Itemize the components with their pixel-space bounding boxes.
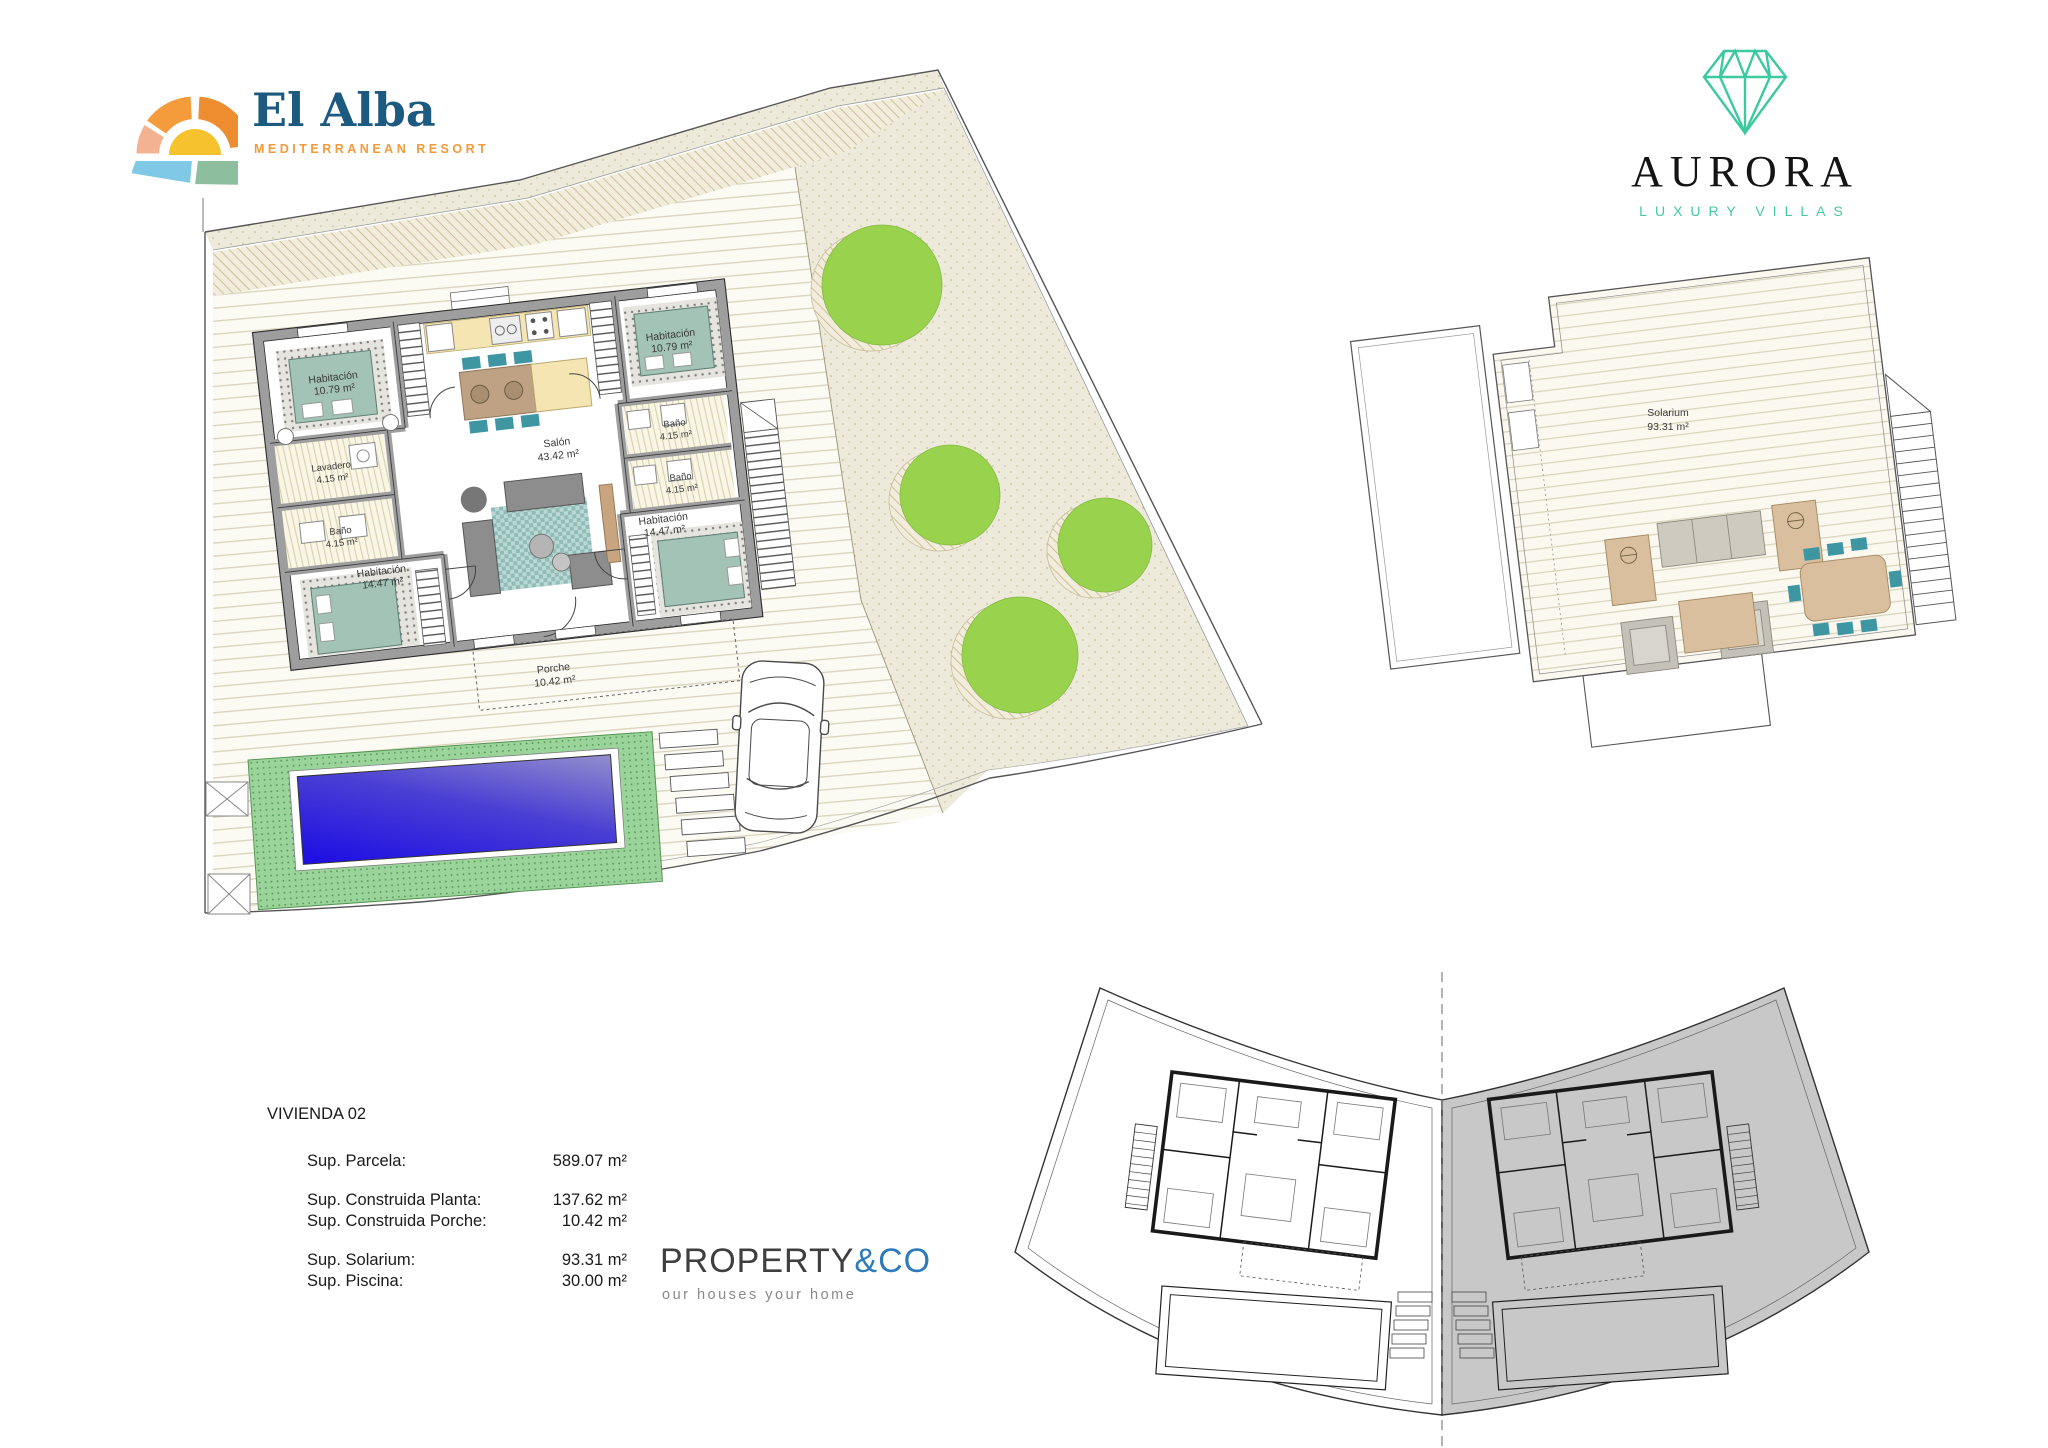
site-plan: [980, 950, 1940, 1448]
solarium-plan: Solarium 93.31 m²: [1330, 230, 1960, 760]
site-unit-right-highlighted: [1442, 988, 1869, 1415]
solarium-label: Solarium: [1647, 407, 1689, 419]
car-icon: [727, 660, 832, 835]
info-label: Sup. Solarium:: [307, 1250, 415, 1272]
diamond-icon: [1690, 45, 1800, 140]
aurora-tagline: LUXURY VILLAS: [1600, 203, 1890, 219]
info-row: Sup. Construida Porche: 10.42 m²: [267, 1211, 627, 1233]
solarium-area: 93.31 m²: [1647, 421, 1689, 433]
info-row: Sup. Solarium: 93.31 m²: [267, 1250, 627, 1272]
property-co-accent: &CO: [854, 1244, 931, 1278]
floorplan-sheet: El Alba MEDITERRANEAN RESORT AURORA LUXU…: [0, 0, 2048, 1448]
property-co-tagline: our houses your home: [662, 1287, 990, 1303]
vivienda-title: VIVIENDA 02: [267, 1105, 627, 1124]
aurora-name: AURORA: [1600, 146, 1890, 197]
info-value: 30.00 m²: [562, 1271, 627, 1293]
info-row: Sup. Piscina: 30.00 m²: [267, 1271, 627, 1293]
property-co-name: PROPERTY: [660, 1244, 854, 1278]
info-value: 10.42 m²: [562, 1211, 627, 1233]
property-co-logo: PROPERTY&CO our houses your home: [660, 1244, 990, 1303]
main-floor-plan: Porche 10.42 m² Habitación 10.79 m² Habi…: [150, 40, 1330, 960]
vivienda-info: VIVIENDA 02 Sup. Parcela: 589.07 m² Sup.…: [267, 1105, 627, 1293]
aurora-logo: AURORA LUXURY VILLAS: [1600, 45, 1890, 219]
info-value: 93.31 m²: [562, 1250, 627, 1272]
info-value: 589.07 m²: [553, 1151, 627, 1173]
info-row: Sup. Construida Planta: 137.62 m²: [267, 1190, 627, 1212]
info-label: Sup. Construida Porche:: [307, 1211, 487, 1233]
info-row: Sup. Parcela: 589.07 m²: [267, 1151, 627, 1173]
info-label: Sup. Piscina:: [307, 1271, 403, 1293]
info-value: 137.62 m²: [553, 1190, 627, 1212]
site-unit-left: [1015, 988, 1442, 1415]
info-label: Sup. Parcela:: [307, 1151, 406, 1173]
info-label: Sup. Construida Planta:: [307, 1190, 481, 1212]
